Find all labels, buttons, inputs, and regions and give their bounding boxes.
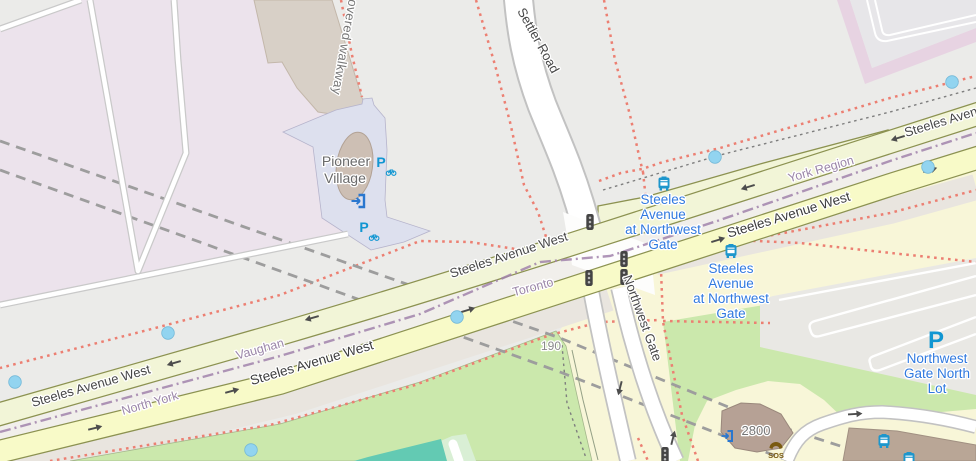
svg-text:Northwest: Northwest — [907, 351, 968, 366]
svg-text:Pioneer: Pioneer — [322, 153, 371, 169]
svg-text:SOS: SOS — [768, 451, 784, 460]
svg-text:Steeles: Steeles — [708, 261, 753, 276]
svg-text:Avenue: Avenue — [640, 207, 686, 222]
svg-text:at Northwest: at Northwest — [625, 222, 701, 237]
svg-text:Gate: Gate — [648, 237, 677, 252]
svg-text:at Northwest: at Northwest — [693, 291, 769, 306]
svg-text:Avenue: Avenue — [708, 276, 754, 291]
svg-text:Village: Village — [324, 170, 366, 186]
svg-text:Lot: Lot — [928, 381, 947, 396]
svg-text:Steeles: Steeles — [640, 192, 685, 207]
svg-text:Gate: Gate — [716, 306, 745, 321]
svg-text:P: P — [928, 327, 944, 354]
svg-text:P: P — [376, 154, 385, 170]
svg-text:190: 190 — [541, 339, 561, 353]
svg-text:Gate North: Gate North — [904, 366, 970, 381]
svg-text:2800: 2800 — [742, 423, 771, 438]
svg-text:P: P — [359, 219, 368, 235]
